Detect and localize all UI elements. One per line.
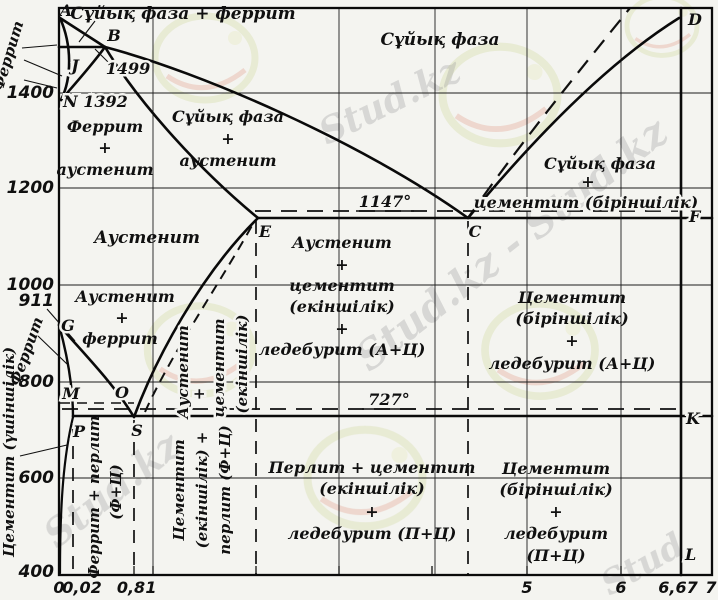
- region-cementite2-perlite: (екіншілік) +: [193, 432, 211, 549]
- point-F: F: [688, 207, 702, 226]
- region-cem1-ledeburite-a: (біріншілік): [515, 309, 628, 328]
- region-perlite-cementite-led: (екіншілік): [319, 479, 425, 498]
- x-tick-08: 0,8: [117, 578, 145, 597]
- region-aus-cem-ledeburite: цементит: [289, 276, 395, 295]
- x-tick-1: 1: [145, 578, 156, 597]
- phase-diagram-page: Stud.kz Stud.kz - Stud.kz Stud.kz Stud: [0, 0, 718, 600]
- region-aus-cem-ledeburite: +: [335, 255, 348, 274]
- point-L: L: [684, 545, 696, 564]
- region-austenite-cementite2: +: [190, 388, 208, 401]
- region-cem1-ledeburite-p: Цементит: [501, 459, 610, 478]
- point-C: C: [469, 222, 482, 241]
- region-austenite-cementite2: (екіншілік): [233, 315, 251, 414]
- region-cem1-ledeburite-p: (біріншілік): [499, 480, 612, 499]
- region-ferrite-austenite: +: [98, 138, 111, 157]
- eutectoid-temp-label: 727°: [368, 390, 409, 409]
- x-tick-667: 6,67: [658, 578, 698, 597]
- region-cementite2-perlite: Цементит: [170, 439, 188, 541]
- region-liquid-austenite: аустенит: [179, 151, 276, 170]
- region-aus-cem-ledeburite: Аустенит: [291, 233, 392, 252]
- region-austenite-cementite2: цементит: [210, 319, 228, 418]
- iron-carbon-phase-diagram: Stud.kz Stud.kz - Stud.kz Stud.kz Stud: [0, 0, 718, 600]
- region-perlite-cementite-led: +: [365, 502, 378, 521]
- region-austenite-ferrite: феррит: [82, 329, 158, 348]
- y-tick-1400: 1400: [7, 83, 54, 103]
- region-ferrite-austenite: аустенит: [56, 160, 153, 179]
- region-liquid-austenite: Сұйық фаза: [172, 107, 284, 126]
- point-B-temp: 1499: [106, 59, 151, 78]
- region-austenite-cementite2: Аустенит: [174, 325, 192, 419]
- point-P: P: [72, 422, 86, 441]
- y-tick-1200: 1200: [7, 178, 54, 198]
- region-cem1-ledeburite-p: +: [549, 502, 562, 521]
- point-B: B: [106, 26, 121, 45]
- region-aus-cem-ledeburite: +: [335, 319, 348, 338]
- point-G: G: [61, 316, 75, 335]
- y-tick-400: 400: [18, 562, 55, 582]
- x-tick-7: 7: [705, 578, 717, 597]
- region-austenite: Аустенит: [92, 228, 200, 248]
- point-S: S: [131, 421, 143, 440]
- x-tick-5: 5: [521, 578, 532, 597]
- point-E: E: [258, 222, 272, 241]
- region-perlite-cementite-led: Перлит + цементит: [268, 458, 476, 477]
- point-D: D: [687, 10, 702, 29]
- region-austenite-ferrite: +: [115, 308, 128, 327]
- point-A: A: [58, 1, 72, 20]
- region-cem1-ledeburite-p: ледебурит: [504, 524, 608, 543]
- region-liquid-ferrite: Сұйық фаза + феррит: [70, 4, 295, 24]
- y-tick-600: 600: [19, 468, 55, 488]
- region-liquid: Сұйық фаза: [381, 30, 500, 50]
- eutectic-temp-label: 1147°: [359, 192, 412, 211]
- region-austenite-ferrite: Аустенит: [74, 287, 175, 306]
- point-M: M: [61, 384, 81, 403]
- x-tick-6: 6: [615, 578, 626, 597]
- region-ferrite-austenite: Феррит: [67, 117, 143, 136]
- margin-cementite-tertiary: Цементит (үшіншілік): [0, 347, 18, 558]
- region-liquid-austenite: +: [221, 129, 234, 148]
- point-K: K: [685, 409, 701, 428]
- region-cem1-ledeburite-p: (П+Ц): [526, 546, 585, 565]
- region-cem1-ledeburite-a: Цементит: [517, 288, 626, 307]
- region-liquid-cementite1: +: [581, 172, 594, 191]
- y-tick-800: 800: [19, 372, 55, 392]
- region-ferrite-perlite: Феррит + перлит: [85, 415, 103, 578]
- region-liquid-cementite1: Сұйық фаза: [544, 154, 656, 173]
- region-cem1-ledeburite-a: ледебурит (А+Ц): [489, 354, 656, 373]
- region-aus-cem-ledeburite: (екіншілік): [289, 297, 395, 316]
- region-perlite-cementite-led: ледебурит (П+Ц): [288, 524, 457, 543]
- point-N: N 1392: [62, 92, 128, 111]
- x-tick-002: 0,02: [62, 578, 101, 597]
- region-ferrite-perlite: (Ф+Ц): [107, 464, 125, 520]
- region-cem1-ledeburite-a: +: [565, 331, 578, 350]
- point-O: O: [115, 383, 129, 402]
- region-aus-cem-ledeburite: ледебурит (А+Ц): [259, 340, 426, 359]
- y-tick-911: 911: [19, 291, 55, 311]
- region-liquid-cementite1: цементит (біріншілік): [474, 193, 698, 212]
- region-cementite2-perlite: перлит (Ф+Ц): [216, 425, 234, 554]
